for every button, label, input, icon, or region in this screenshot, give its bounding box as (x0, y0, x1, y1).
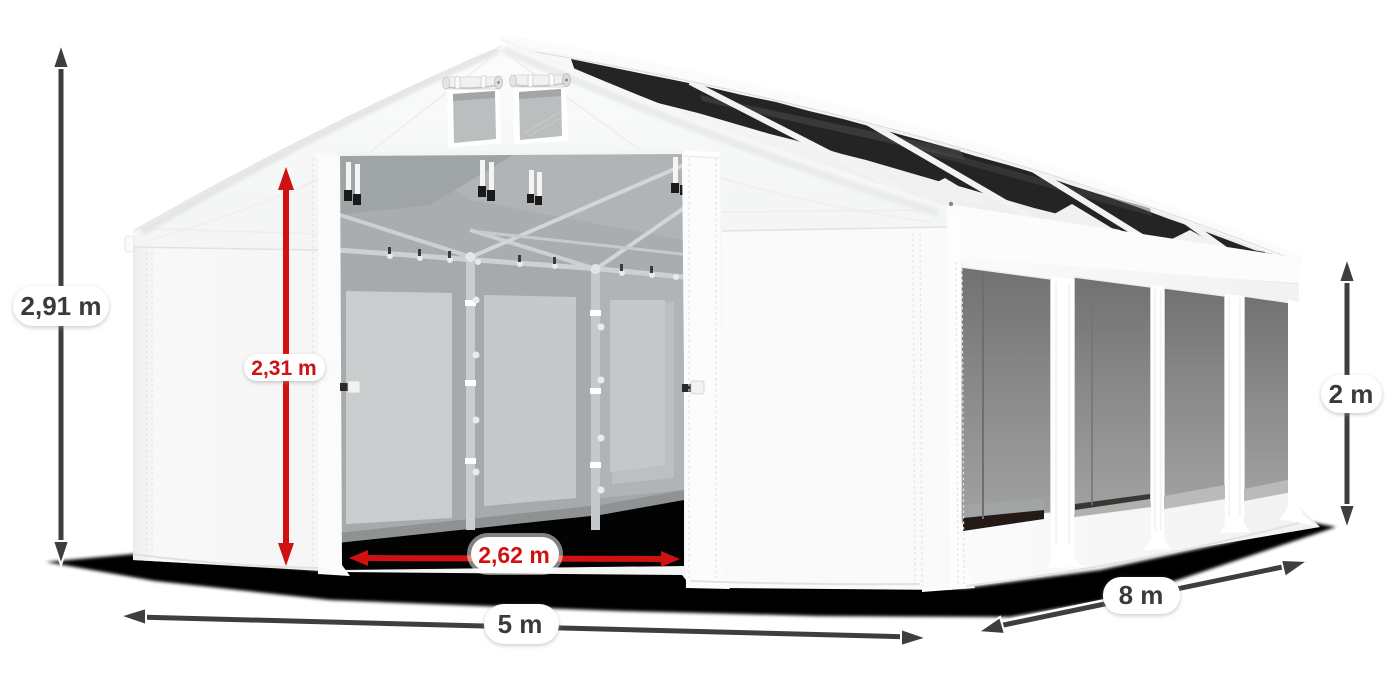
svg-text:2,91 m: 2,91 m (21, 291, 102, 321)
svg-text:2 m: 2 m (1329, 379, 1374, 409)
svg-text:5 m: 5 m (498, 609, 543, 639)
svg-text:2,31 m: 2,31 m (251, 357, 316, 380)
svg-text:2,62 m: 2,62 m (478, 542, 550, 568)
svg-text:8 m: 8 m (1119, 580, 1164, 610)
